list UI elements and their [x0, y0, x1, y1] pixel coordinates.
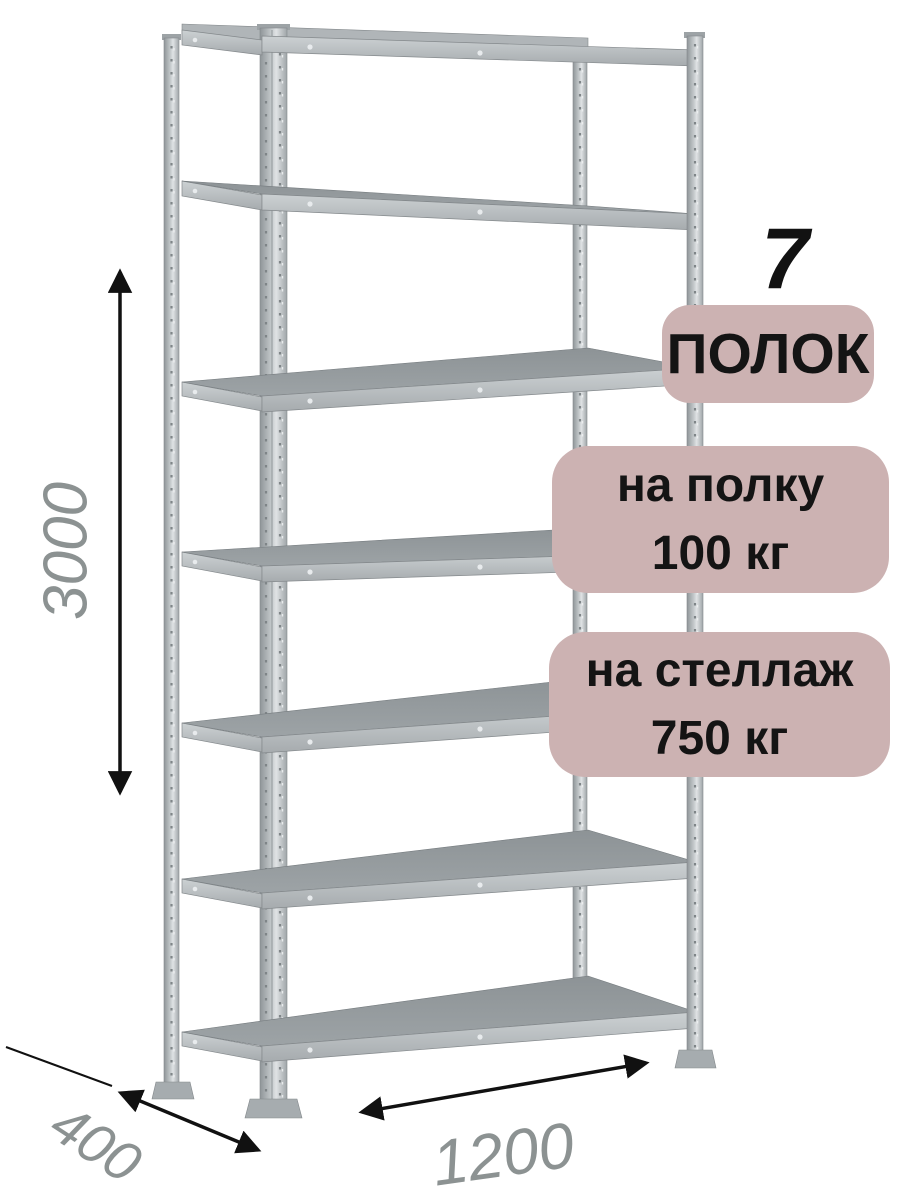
shelf-count-badge-label: ПОЛОК [666, 321, 869, 387]
width-dimension-arrow [362, 1063, 646, 1112]
rack-shelf-6 [182, 830, 696, 909]
product-image: 7 ПОЛОК на полку 100 кг на стеллаж 750 к… [0, 0, 900, 1200]
rack-foot-front-left [245, 1099, 302, 1118]
rack-shelf-7 [182, 976, 696, 1062]
rack-shelf-3 [182, 348, 696, 412]
capacity-per-shelf-badge: на полку 100 кг [552, 446, 889, 593]
shelving-rack-illustration [0, 0, 900, 1200]
shelf-count-badge: ПОЛОК [662, 305, 874, 403]
rack-foot-back-left [152, 1082, 194, 1099]
shelf-count-number: 7 [737, 210, 833, 309]
depth-dimension-extension-line [6, 1047, 112, 1086]
rack-foot-front-right [675, 1050, 716, 1068]
capacity-per-shelf-line1: на полку [617, 452, 824, 519]
rack-shelf-2 [182, 181, 696, 230]
capacity-per-shelf-line2: 100 кг [652, 520, 789, 587]
capacity-per-rack-badge: на стеллаж 750 кг [549, 632, 890, 777]
capacity-per-rack-line1: на стеллаж [586, 637, 854, 704]
capacity-per-rack-line2: 750 кг [651, 705, 788, 772]
height-dimension-label: 3000 [31, 482, 102, 620]
